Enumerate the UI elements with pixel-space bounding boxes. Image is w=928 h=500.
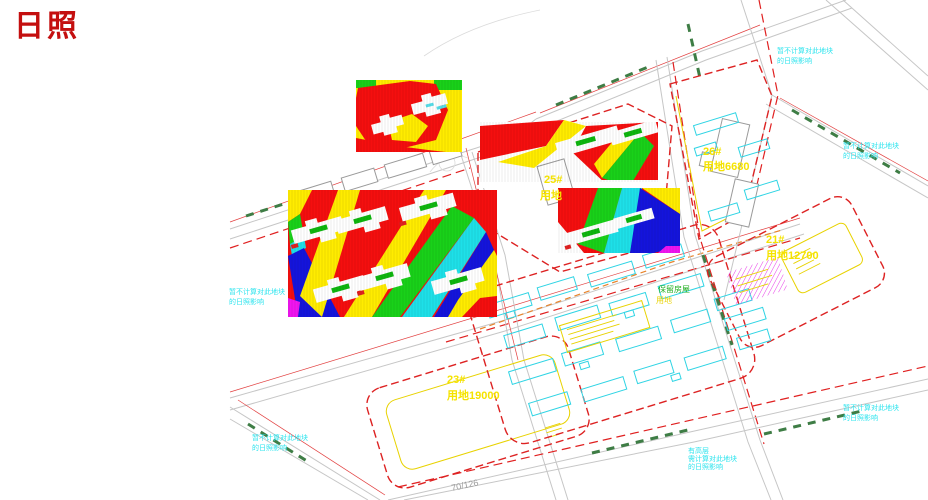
svg-text:暂不计算对此地块: 暂不计算对此地块 (229, 287, 285, 296)
svg-text:暂不计算对此地块: 暂不计算对此地块 (843, 403, 899, 412)
parcel-23-number: 23# (447, 374, 465, 386)
parcel-26-number: 26# (703, 146, 721, 158)
svg-text:的日照影响: 的日照影响 (777, 56, 812, 65)
parcel-21-area: 用地12700 (766, 248, 819, 262)
svg-text:有高层: 有高层 (688, 446, 709, 455)
note-right: 暂不计算对此地块 的日照影响 (843, 141, 899, 160)
note-highrise: 有高层 需计算对此地块 的日照影响 (688, 446, 737, 471)
parcel-25-area: 用地 (540, 188, 562, 202)
parcel-21-number: 21# (766, 234, 784, 246)
road-station-label: 70/126 (450, 477, 479, 493)
svg-text:暂不计算对此地块: 暂不计算对此地块 (252, 433, 308, 442)
svg-text:暂不计算对此地块: 暂不计算对此地块 (777, 46, 833, 55)
svg-text:暂不计算对此地块: 暂不计算对此地块 (843, 141, 899, 150)
svg-text:的日照影响: 的日照影响 (252, 443, 287, 452)
parcel-23-area: 用地19000 (447, 388, 500, 402)
retained-area-label: 用地 (656, 295, 672, 305)
retained-buildings-label: 保留房屋 (658, 284, 690, 294)
svg-text:需计算对此地块: 需计算对此地块 (688, 454, 737, 463)
building-footprint (725, 179, 758, 227)
magenta-hatched-area (726, 257, 788, 305)
sunlight-analysis-block-a (356, 80, 462, 152)
svg-text:的日照影响: 的日照影响 (229, 297, 264, 306)
parcel-23 (362, 332, 593, 493)
parcel-25-number: 25# (544, 174, 562, 186)
svg-text:的日照影响: 的日照影响 (843, 413, 878, 422)
site-plan: 26# 用地6680 21# 用地12700 23# 用地19000 25# 用… (0, 0, 928, 500)
sunlight-analysis-block-d (558, 188, 680, 253)
svg-text:的日照影响: 的日照影响 (688, 462, 723, 471)
note-top-right: 暂不计算对此地块 的日照影响 (777, 46, 833, 65)
note-left: 暂不计算对此地块 的日照影响 (229, 287, 285, 306)
parcel-26-area: 用地6680 (703, 159, 749, 173)
sunlight-analysis-drawing: 日照 (0, 0, 928, 500)
svg-text:的日照影响: 的日照影响 (843, 151, 878, 160)
sunlight-analysis-block-b (286, 188, 497, 317)
